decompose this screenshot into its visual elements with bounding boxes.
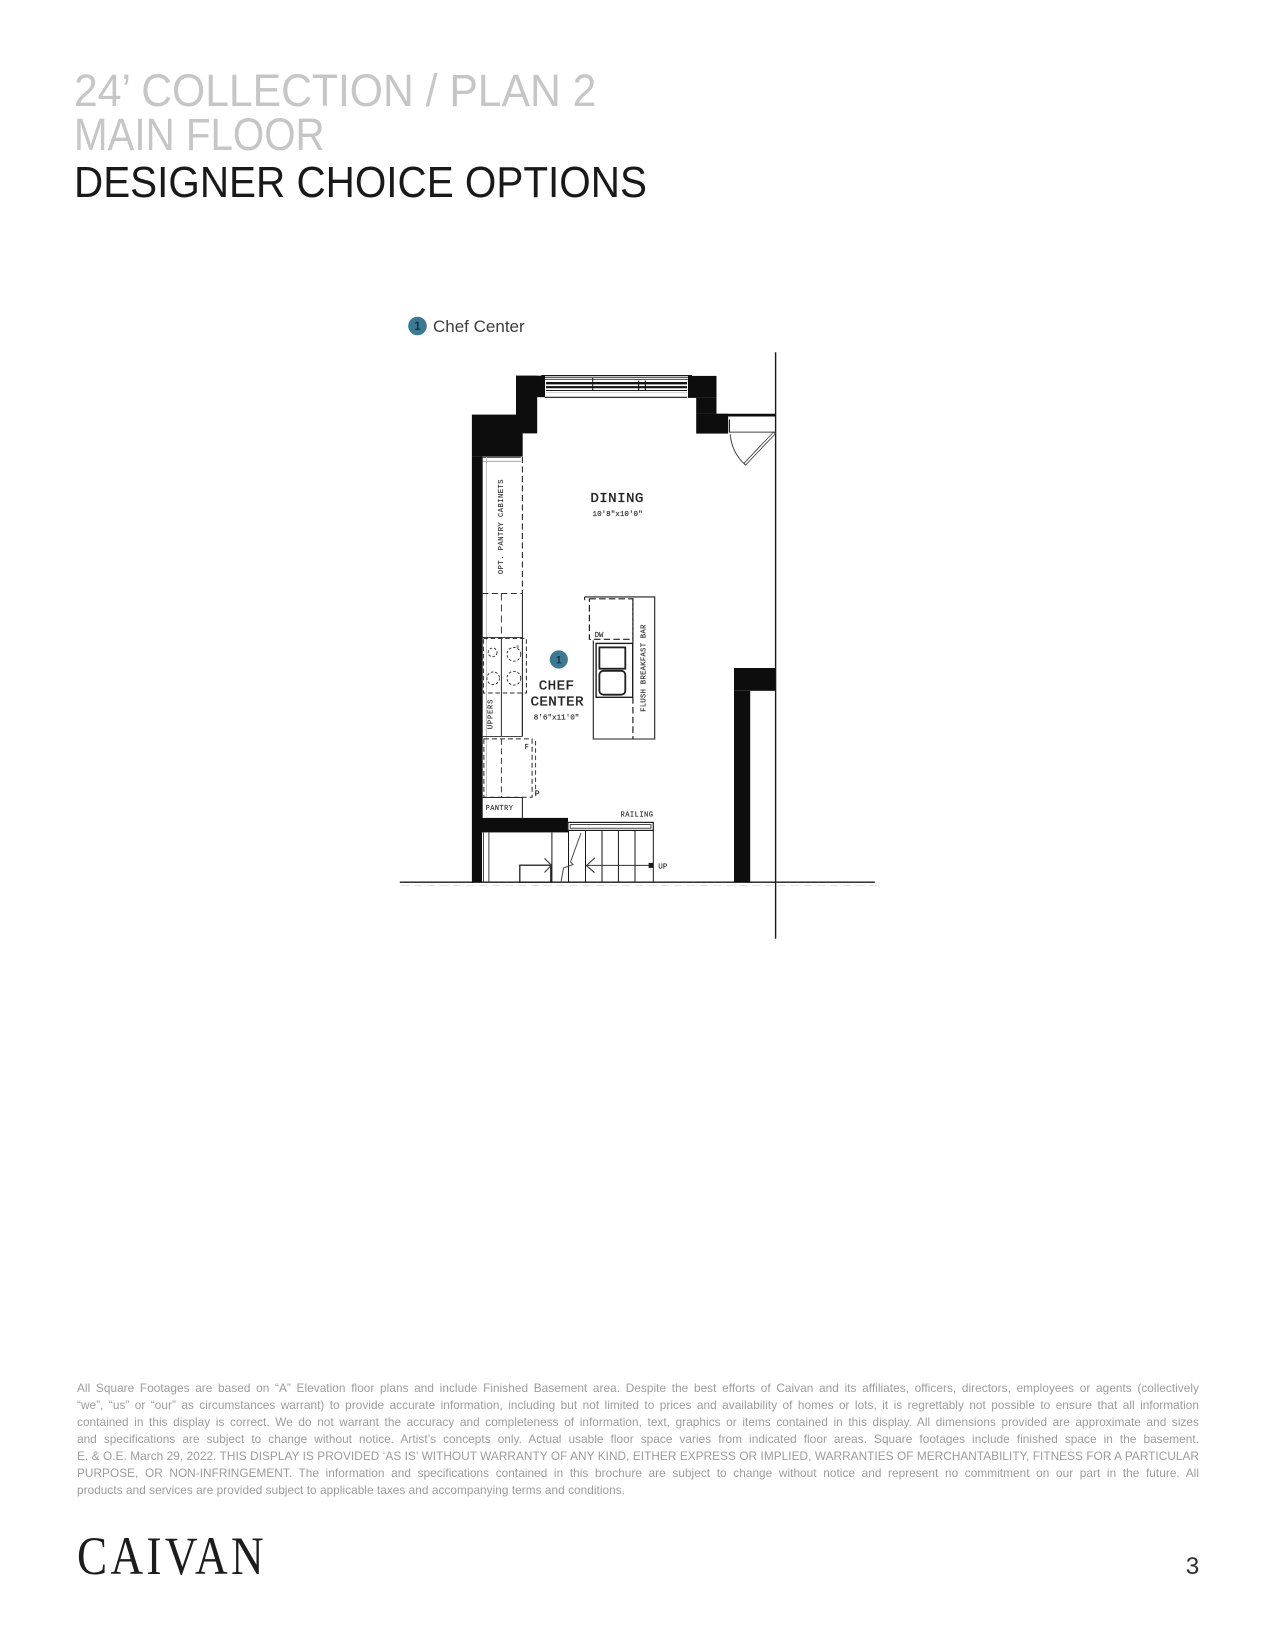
svg-text:8'6"x11'0": 8'6"x11'0" [534, 714, 580, 722]
svg-text:FLUSH BREAKFAST BAR: FLUSH BREAKFAST BAR [641, 624, 649, 712]
svg-text:CHEF: CHEF [539, 679, 575, 695]
svg-text:CENTER: CENTER [530, 695, 584, 711]
svg-text:s: s [516, 643, 519, 650]
svg-text:PANTRY: PANTRY [486, 805, 514, 813]
svg-text:Chef Center: Chef Center [433, 317, 525, 336]
svg-text:10'8"x10'0": 10'8"x10'0" [593, 511, 643, 519]
svg-text:P: P [535, 790, 540, 799]
svg-text:DINING: DINING [590, 491, 643, 507]
svg-text:1: 1 [414, 319, 421, 333]
svg-text:UP: UP [658, 864, 668, 872]
svg-text:DW: DW [595, 632, 604, 640]
svg-text:UPPERS: UPPERS [488, 699, 496, 729]
svg-text:1: 1 [556, 654, 562, 666]
svg-text:F: F [525, 744, 529, 752]
svg-text:RAILING: RAILING [621, 811, 654, 819]
svg-text:OPT. PANTRY CABINETS: OPT. PANTRY CABINETS [498, 479, 506, 574]
